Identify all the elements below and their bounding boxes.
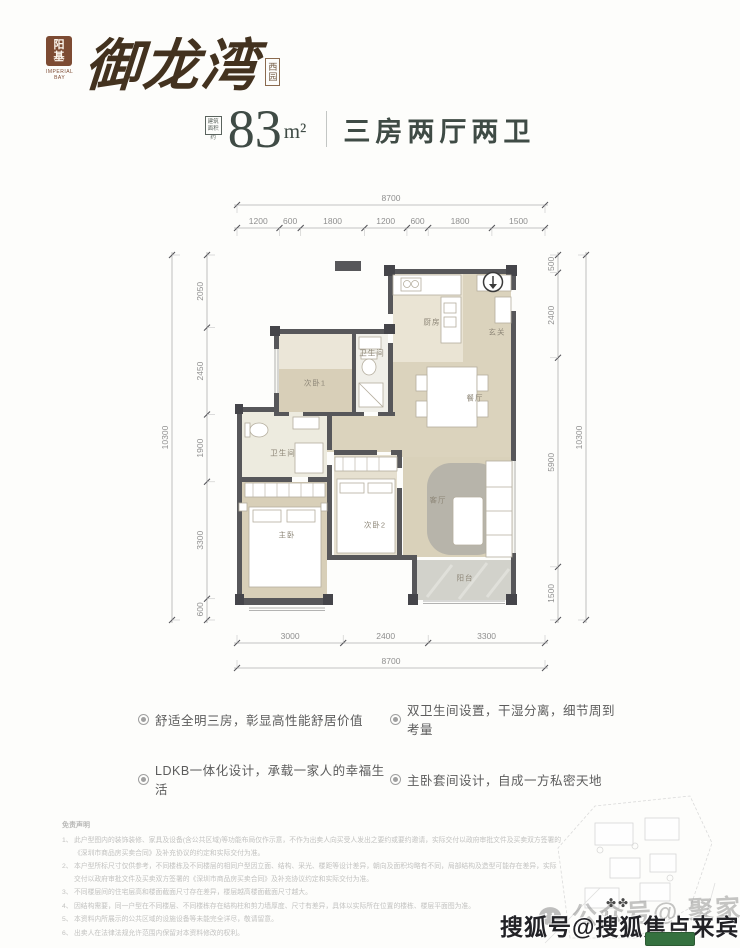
room-label: 卫生间: [359, 348, 385, 359]
dimension-label: 1200: [376, 216, 395, 226]
room-label: 厨房: [424, 317, 441, 328]
brand-seal-icon: 阳 基: [46, 36, 72, 66]
dimension-label: 600: [283, 216, 297, 226]
floorplan-drawing: 8700120060018001200600180015001030020502…: [150, 185, 620, 695]
entry-direction-icon: [484, 273, 503, 292]
disclaimer: 免责声明 此户型图内的装饰装修、家具及设备(含公共区域)等功能布局仅作示意，不作…: [62, 820, 562, 941]
brand-english-caption: IMPERIAL BAY: [46, 69, 73, 81]
dimension-label: 8700: [382, 193, 401, 203]
dimension-label: 5900: [546, 453, 556, 472]
header-divider: [326, 111, 327, 147]
seal-char: 阳: [54, 39, 65, 51]
dimension-label: 600: [195, 602, 205, 616]
dimension-label: 1500: [509, 216, 528, 226]
feature-item: LDKB一体化设计，承载一家人的幸福生活: [138, 760, 390, 798]
sohu-watermark: 搜狐号@搜狐焦点来宾站: [500, 908, 740, 942]
room-label: 次卧2: [364, 520, 386, 531]
dimension-label: 600: [410, 216, 424, 226]
dimension-label: 2450: [195, 361, 205, 380]
brand-name-calligraphy: 御龙湾: [83, 36, 261, 96]
area-badge: 建筑 面积 约: [205, 116, 222, 142]
room-label: 卫生间: [270, 448, 296, 459]
ring-bullet-icon: [390, 714, 401, 725]
ring-bullet-icon: [138, 774, 149, 785]
brand-logo: 阳 基 IMPERIAL BAY 御龙湾 西 园: [46, 36, 280, 96]
room-label: 玄关: [489, 327, 506, 338]
room-label: 次卧1: [304, 378, 326, 389]
room-label: 餐厅: [467, 393, 484, 404]
dimension-label: 10300: [160, 425, 170, 449]
dimension-label: 1200: [249, 216, 268, 226]
feature-item: 双卫生间设置，干湿分离，细节周到考量: [390, 700, 624, 738]
feature-item: 舒适全明三房，彰显高性能舒居价值: [138, 700, 390, 738]
disclaimer-list: 此户型图内的装饰装修、家具及设备(含公共区域)等功能布局仅作示意，不作为出卖人向…: [62, 835, 562, 940]
dimension-label: 10300: [574, 425, 584, 449]
seal-char: 基: [54, 51, 65, 63]
dimension-label: 2400: [546, 306, 556, 325]
site-plan-legend-badge: [645, 932, 695, 946]
dimension-label: 1800: [451, 216, 470, 226]
dimension-label: 8700: [382, 656, 401, 666]
ring-bullet-icon: [138, 714, 149, 725]
dimension-label: 1500: [546, 584, 556, 603]
brand-suffix-badge: 西 园: [265, 58, 280, 86]
ring-bullet-icon: [390, 774, 401, 785]
dimension-label: 1900: [195, 438, 205, 457]
dimension-label: 2050: [195, 282, 205, 301]
room-label: 客厅: [430, 495, 447, 506]
area-value: 83: [228, 104, 282, 154]
disclaimer-title: 免责声明: [62, 820, 562, 830]
dimension-label: 3000: [281, 631, 300, 641]
feature-list: 舒适全明三房，彰显高性能舒居价值 双卫生间设置，干湿分离，细节周到考量 LDKB…: [138, 700, 624, 798]
unit-header: 建筑 面积 约 83 m² 三房两厅两卫: [0, 104, 740, 154]
dimension-label: 1800: [323, 216, 342, 226]
floorplan-poster-page: 阳 基 IMPERIAL BAY 御龙湾 西 园 建筑 面积 约 83 m² 三…: [0, 0, 740, 948]
area-unit: m²: [284, 119, 307, 144]
room-label: 主卧: [279, 530, 296, 541]
room-label: 阳台: [457, 573, 474, 584]
dimension-label: 2400: [376, 631, 395, 641]
dimension-label: 500: [546, 256, 556, 270]
dimension-label: 3300: [477, 631, 496, 641]
unit-layout-title: 三房两厅两卫: [343, 110, 535, 149]
floorplan: 8700120060018001200600180015001030020502…: [150, 185, 620, 695]
dimension-label: 3300: [195, 531, 205, 550]
